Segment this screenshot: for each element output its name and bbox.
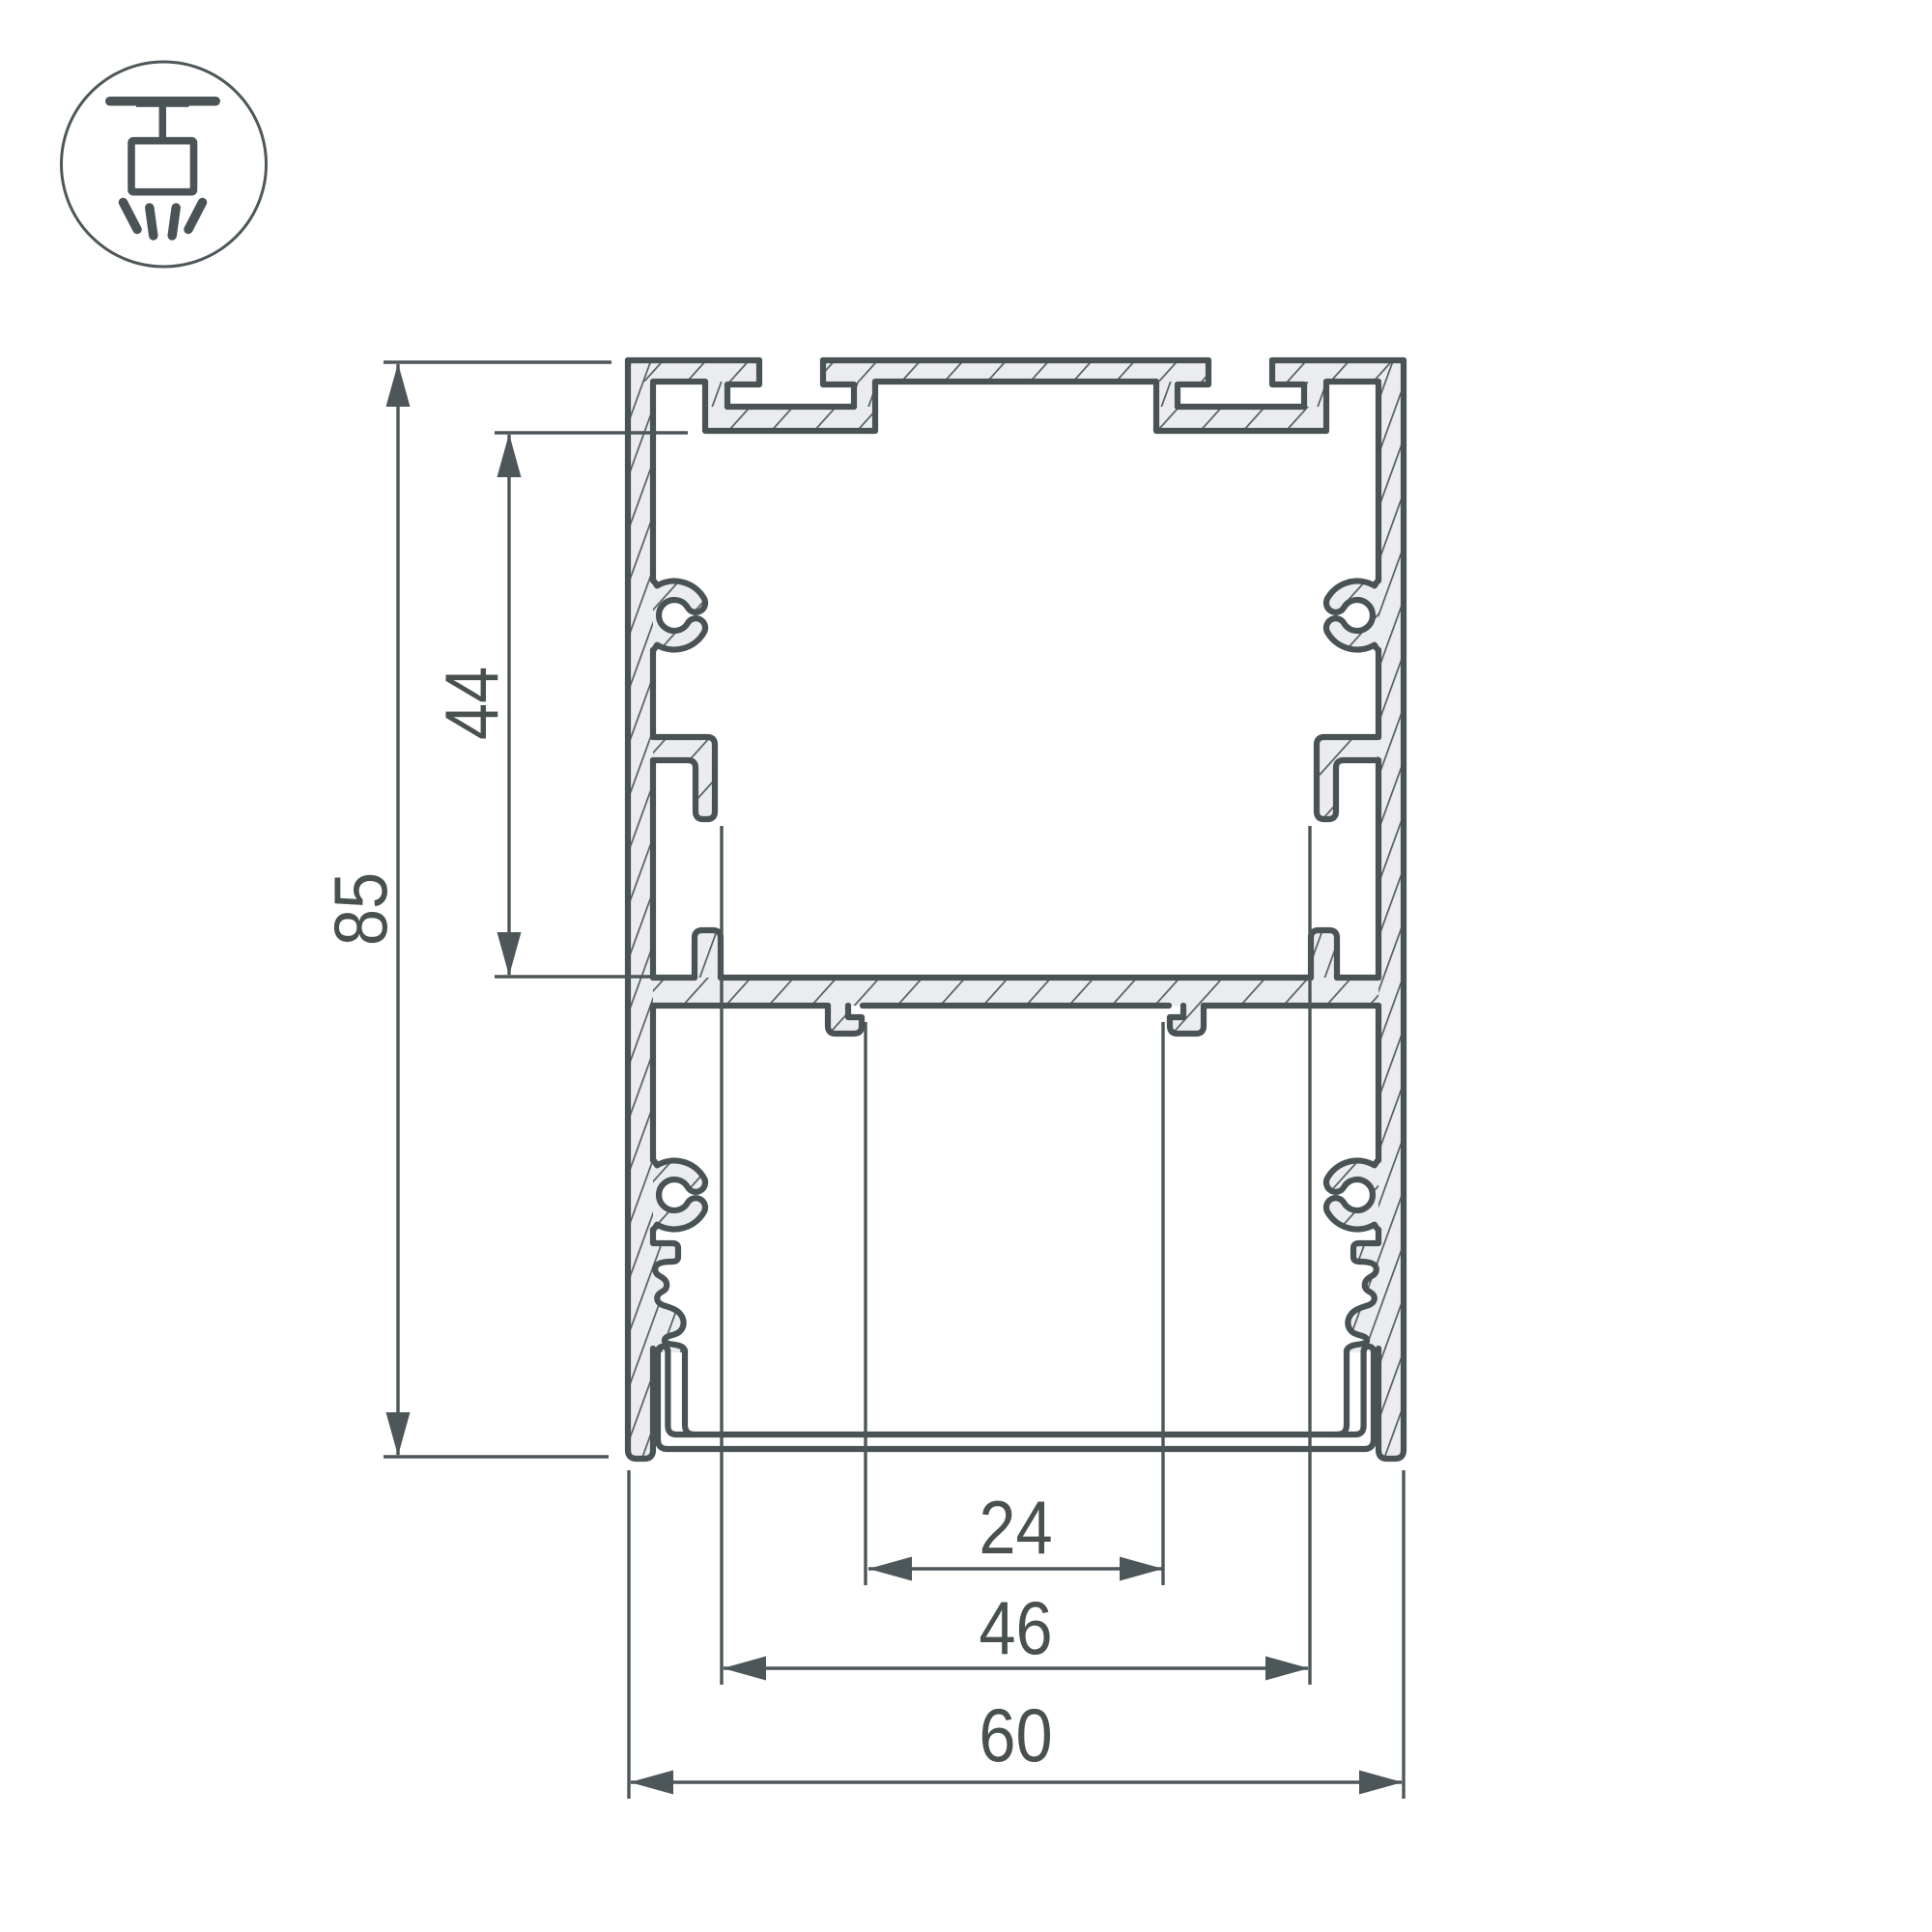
svg-text:46: 46 [979, 1585, 1052, 1670]
svg-text:44: 44 [429, 667, 514, 740]
svg-text:24: 24 [979, 1485, 1052, 1570]
svg-text:60: 60 [979, 1692, 1052, 1777]
svg-text:85: 85 [318, 872, 403, 946]
